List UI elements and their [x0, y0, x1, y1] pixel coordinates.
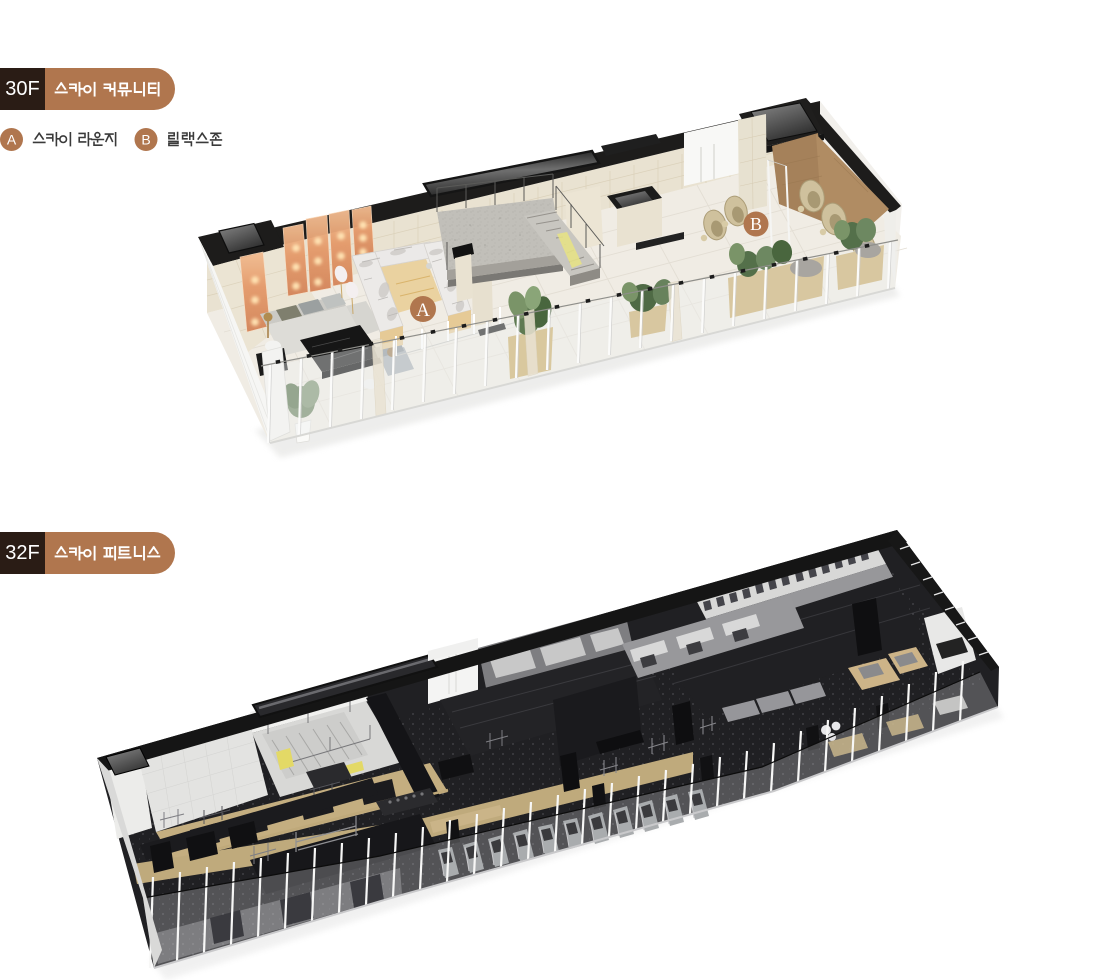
svg-text:A: A — [416, 300, 430, 321]
svg-text:A: A — [7, 132, 17, 148]
svg-text:B: B — [750, 214, 762, 234]
